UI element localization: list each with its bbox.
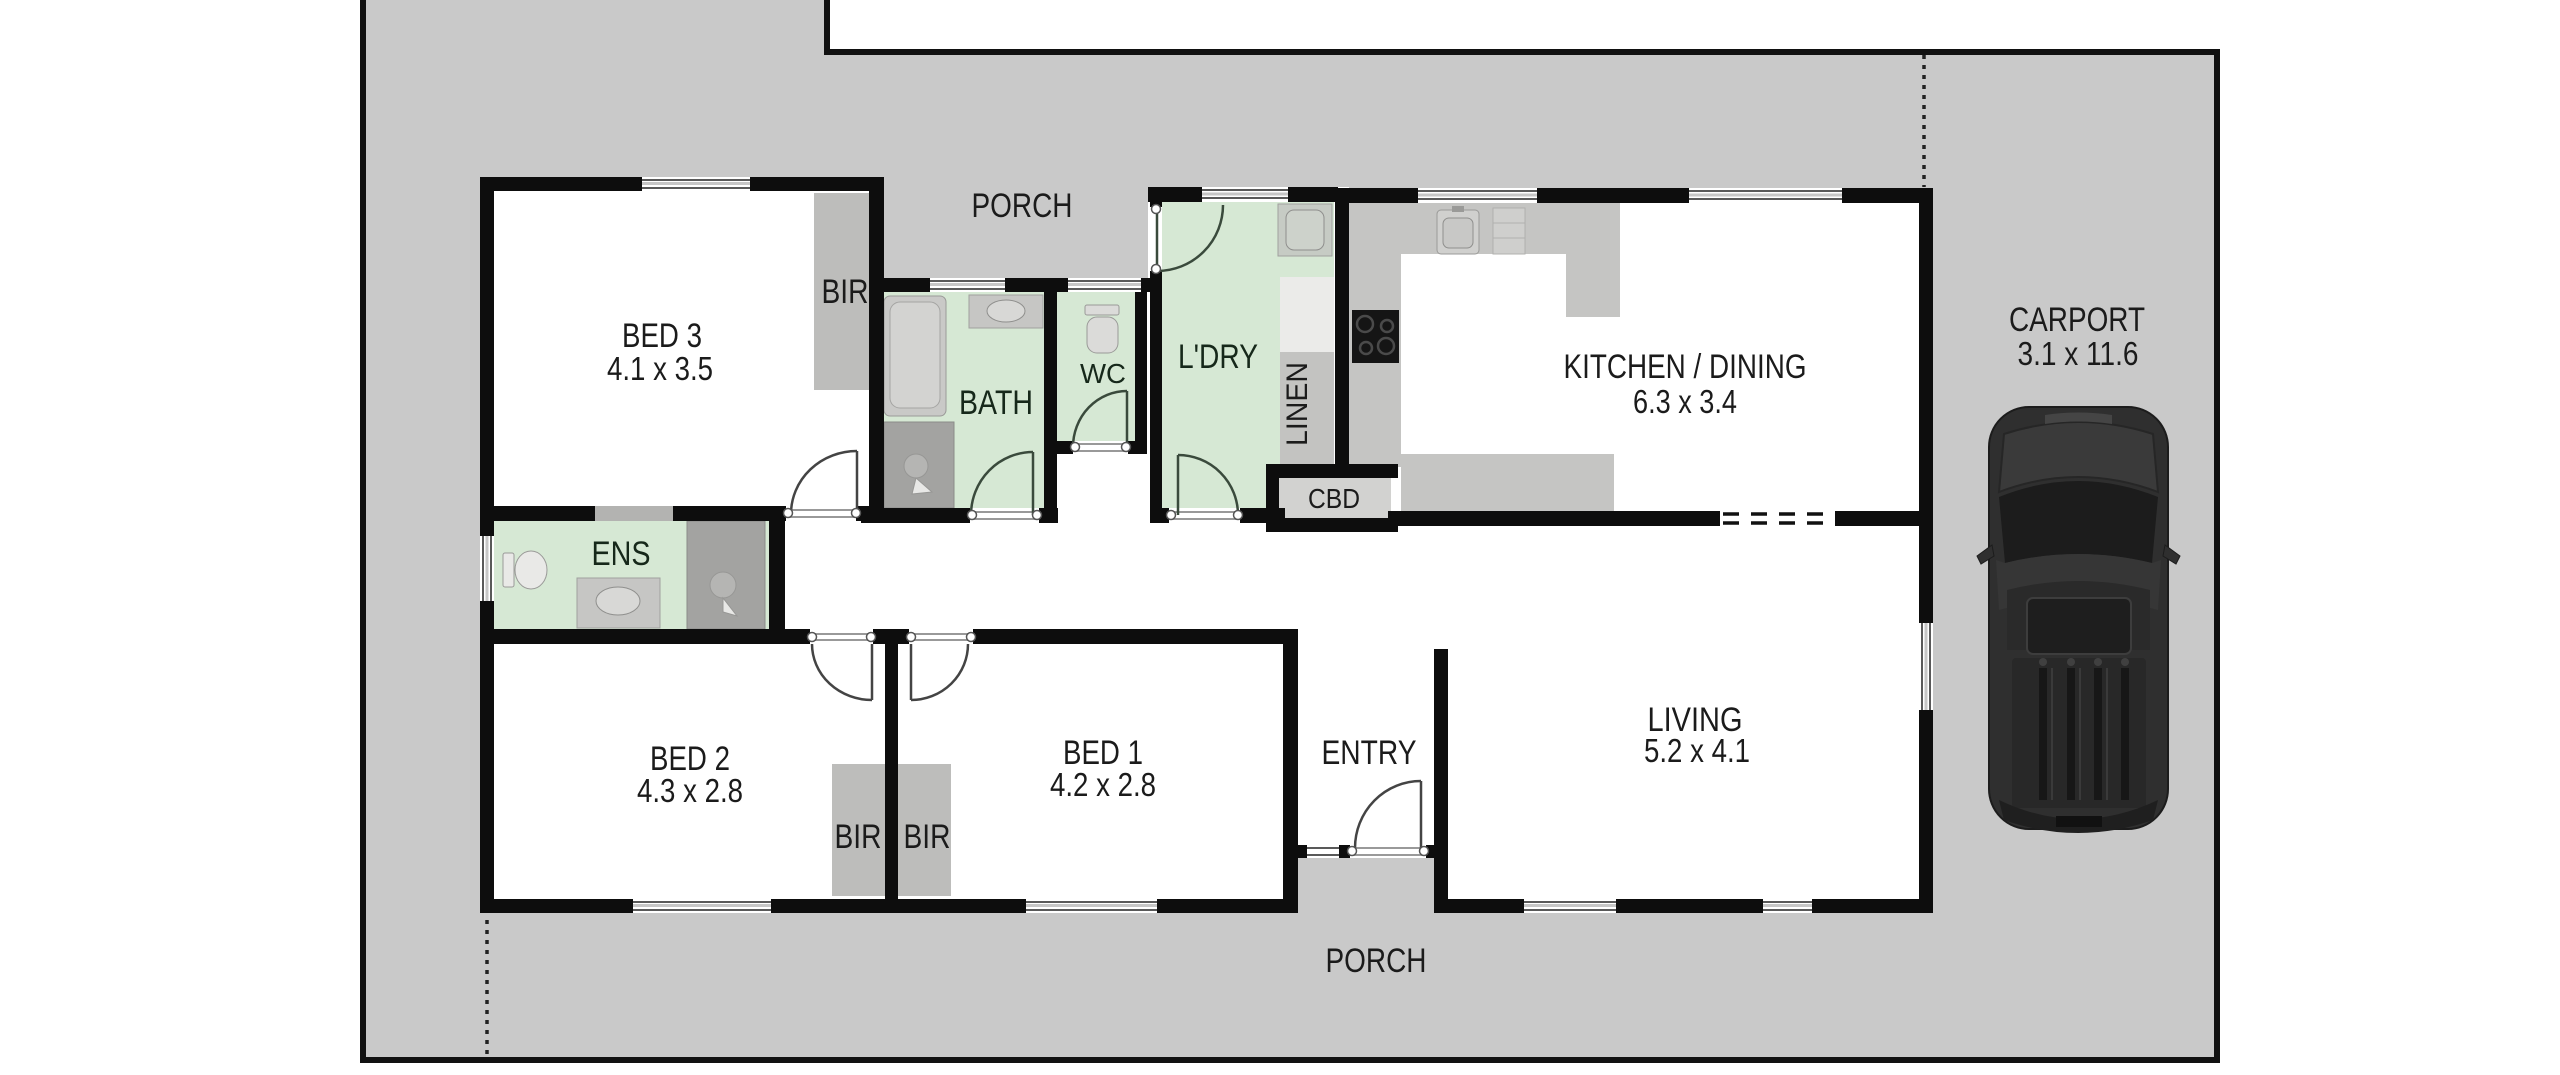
svg-text:6.3 x 3.4: 6.3 x 3.4 — [1633, 383, 1737, 420]
svg-text:3.1 x 11.6: 3.1 x 11.6 — [2018, 335, 2139, 372]
svg-text:KITCHEN / DINING: KITCHEN / DINING — [1564, 348, 1807, 386]
svg-text:L'DRY: L'DRY — [1178, 338, 1258, 376]
svg-text:PORCH: PORCH — [972, 187, 1073, 225]
svg-text:BIR: BIR — [835, 818, 882, 856]
svg-text:PORCH: PORCH — [1326, 942, 1427, 980]
svg-text:CARPORT: CARPORT — [2009, 301, 2145, 339]
svg-text:BIR: BIR — [822, 273, 869, 311]
svg-text:5.2 x 4.1: 5.2 x 4.1 — [1644, 732, 1750, 769]
svg-text:WC: WC — [1080, 358, 1126, 389]
svg-text:4.2 x 2.8: 4.2 x 2.8 — [1050, 766, 1156, 803]
svg-text:CBD: CBD — [1308, 483, 1360, 514]
svg-text:LINEN: LINEN — [1281, 362, 1314, 446]
svg-text:4.3 x 2.8: 4.3 x 2.8 — [637, 772, 743, 809]
svg-text:ENTRY: ENTRY — [1322, 734, 1417, 772]
svg-text:4.1 x 3.5: 4.1 x 3.5 — [607, 350, 713, 387]
svg-text:BIR: BIR — [904, 818, 951, 856]
svg-text:ENS: ENS — [592, 535, 651, 573]
svg-text:BATH: BATH — [959, 384, 1033, 422]
